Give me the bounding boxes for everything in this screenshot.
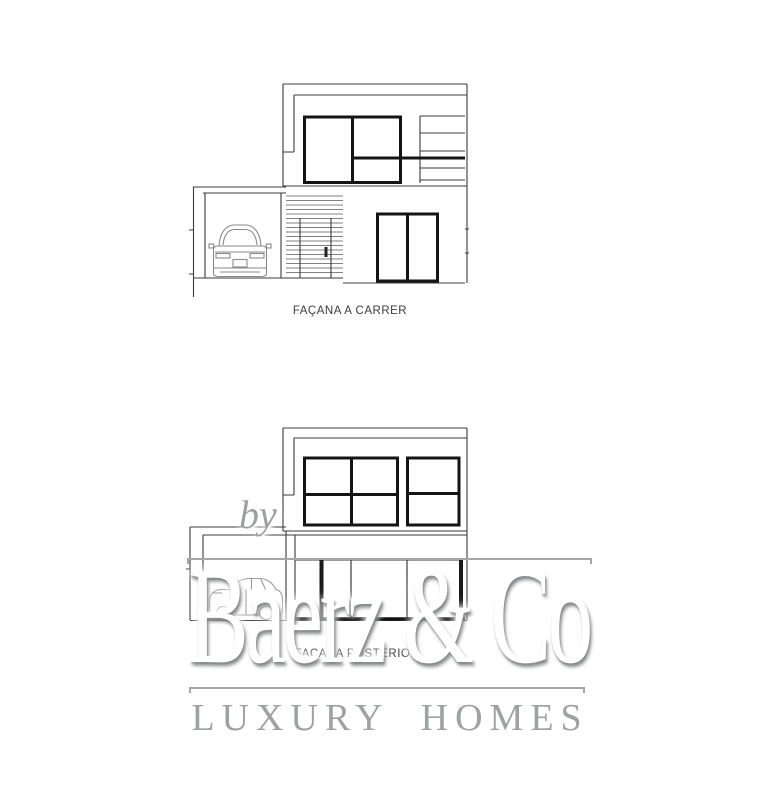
street-facade-drawing <box>189 84 469 297</box>
street-facade-label: FAÇANA A CARRER <box>270 305 430 317</box>
car-rear-icon <box>209 225 271 277</box>
watermark-bottom-rule <box>189 687 585 689</box>
rear-upper-windows <box>305 458 460 525</box>
door-handle <box>325 247 328 257</box>
louver-slats <box>420 116 465 183</box>
upper-window <box>305 117 466 183</box>
ground-door <box>378 214 438 281</box>
watermark-tagline-text: LUXURY HOMES <box>187 699 593 737</box>
watermark-brand-text: Baerz & Co <box>188 547 590 685</box>
slatted-door-stripes <box>286 196 343 273</box>
watermark-by-text: by <box>239 495 277 535</box>
elevation-sheet: FAÇANA A CARRER FAÇANA POSTERIOR by Baer… <box>0 0 777 793</box>
